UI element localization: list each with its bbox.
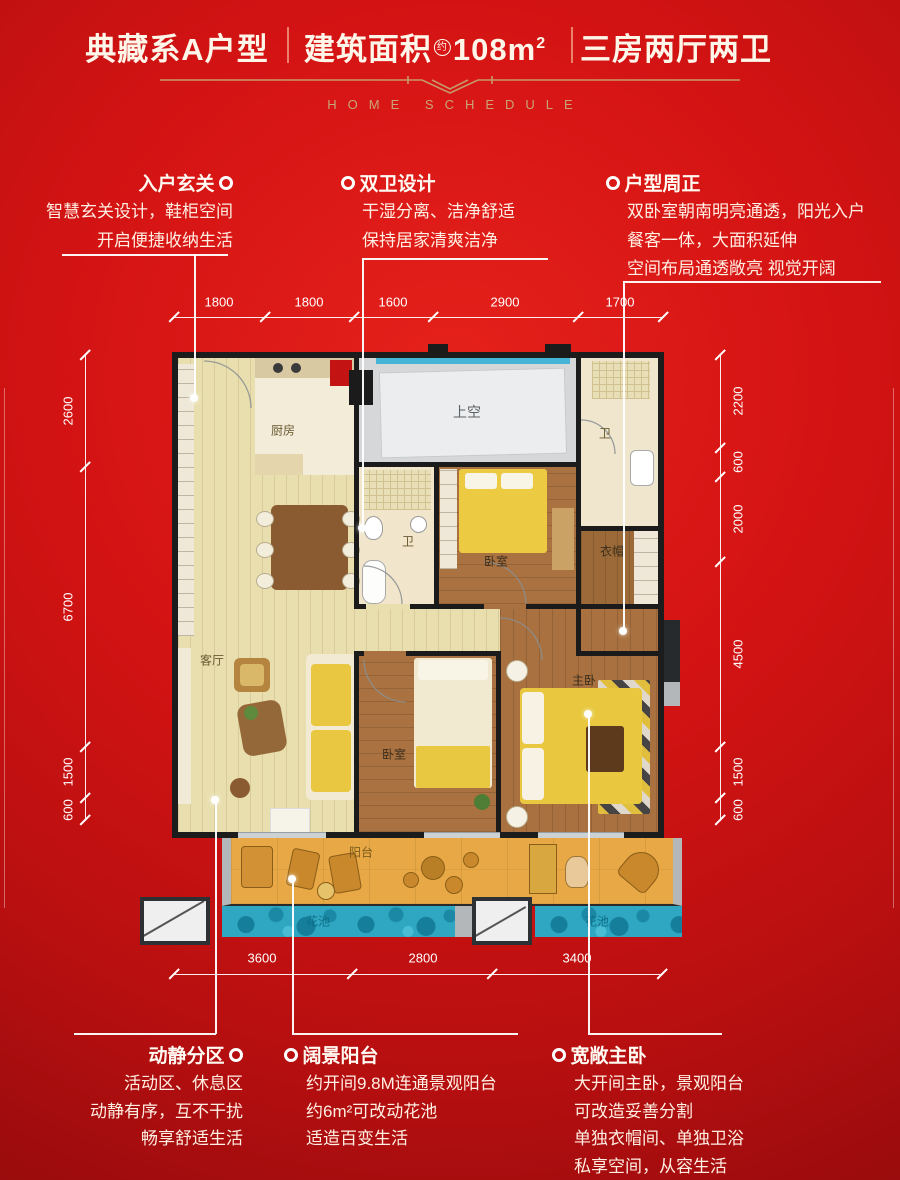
callout-title-row: 阔景阳台 — [284, 1044, 497, 1070]
balcony-seat — [241, 846, 273, 888]
callout-title: 阔景阳台 — [302, 1046, 378, 1067]
callout-bath: 双卫设计 干湿分离、洁净舒适 保持居家清爽洁净 — [341, 172, 515, 255]
room-label-bedroom-south: 卧室 — [382, 746, 406, 763]
callout-title-row: 户型周正 — [606, 172, 865, 198]
callout-line: 单独衣帽间、单独卫浴 — [574, 1125, 744, 1153]
callout-zoning: 动静分区 活动区、休息区 动静有序，互不干扰 畅享舒适生活 — [28, 1044, 243, 1153]
balcony-cart — [529, 844, 557, 894]
callout-ring-icon — [219, 176, 233, 190]
leader-dot — [288, 875, 296, 883]
area-prefix: 建筑面积 — [304, 32, 432, 67]
callout-title-row: 动静分区 — [28, 1044, 243, 1070]
dim-label: 1600 — [379, 295, 408, 310]
callout-title-row: 双卫设计 — [341, 172, 515, 198]
fan-chair — [616, 845, 667, 896]
dim-label: 1700 — [606, 295, 635, 310]
edge-line — [893, 388, 894, 908]
leader-dot — [619, 627, 627, 635]
wall-column — [664, 620, 680, 682]
patio-chair — [403, 872, 419, 888]
callout-title: 双卫设计 — [359, 174, 435, 195]
callout-title: 动静分区 — [149, 1046, 225, 1067]
callout-line: 餐客一体，大面积延伸 — [627, 227, 865, 256]
wall-segment — [455, 906, 472, 937]
callout-title: 入户玄关 — [139, 174, 215, 195]
callout-line: 适造百变生活 — [306, 1125, 497, 1153]
callout-line: 保持居家清爽洁净 — [362, 227, 515, 256]
dim-label: 2800 — [409, 951, 438, 966]
room-label-kitchen: 厨房 — [271, 422, 295, 439]
patio-chair — [445, 876, 463, 894]
lounge-chair — [285, 848, 320, 891]
subtitle: HOME SCHEDULE — [316, 97, 583, 112]
small-table — [317, 882, 335, 900]
leader-dot — [584, 710, 592, 718]
callout-ring-icon — [606, 176, 620, 190]
ac-unit — [472, 897, 532, 945]
leader-line — [623, 281, 625, 631]
room-label-void: 上空 — [453, 402, 481, 422]
room-label-cloakroom: 衣帽 — [600, 543, 624, 560]
callout-balcony: 阔景阳台 约开间9.8M连通景观阳台 约6m²可改动花池 适造百变生活 — [284, 1044, 497, 1153]
room-label-living: 客厅 — [200, 652, 224, 669]
edge-line — [4, 388, 5, 908]
dim-label: 600 — [731, 799, 746, 821]
leader-dot — [358, 524, 366, 532]
callout-line: 活动区、休息区 — [28, 1070, 243, 1098]
balcony: 阳台 — [222, 838, 682, 906]
wall-segment — [664, 682, 680, 706]
leader-line — [362, 258, 364, 528]
callout-line: 干湿分离、洁净舒适 — [362, 198, 515, 227]
dim-line-top — [174, 317, 664, 318]
leader-line — [74, 1033, 216, 1035]
patio-table — [421, 856, 445, 880]
callout-line: 智慧玄关设计，鞋柜空间 — [8, 198, 233, 227]
balcony-fixture — [565, 856, 589, 888]
approx-circle-icon: 约 — [434, 39, 451, 56]
callout-line: 畅享舒适生活 — [28, 1125, 243, 1153]
callout-line: 双卧室朝南明亮通透，阳光入户 — [627, 198, 865, 227]
callout-line: 可改造妥善分割 — [574, 1098, 744, 1126]
callout-ring-icon — [341, 176, 355, 190]
leader-line — [588, 714, 590, 1034]
area-title: 建筑面积约108m2 — [304, 24, 546, 69]
dim-label: 1800 — [205, 295, 234, 310]
ac-diagonal — [140, 900, 205, 939]
callout-line: 开启便捷收纳生活 — [8, 227, 233, 256]
leader-line — [292, 879, 294, 1034]
dim-label: 3600 — [248, 951, 277, 966]
callout-title-row: 入户玄关 — [8, 172, 233, 198]
flower-pool: 花池 — [535, 906, 682, 937]
callout-line: 约开间9.8M连通景观阳台 — [306, 1070, 497, 1098]
dim-label: 1500 — [731, 758, 746, 787]
callout-ring-icon — [552, 1048, 566, 1062]
dim-label: 2600 — [61, 397, 76, 426]
ac-diagonal — [472, 906, 527, 939]
ac-unit — [140, 897, 210, 945]
header-divider — [571, 27, 573, 63]
callout-squared-layout: 户型周正 双卧室朝南明亮通透，阳光入户 餐客一体，大面积延伸 空间布局通透敞亮 … — [606, 172, 865, 284]
leader-dot — [211, 796, 219, 804]
divider-ornament — [160, 72, 740, 98]
area-value: 108m — [453, 32, 536, 67]
callout-line: 动静有序，互不干扰 — [28, 1098, 243, 1126]
leader-line — [588, 1033, 722, 1035]
dim-line-right — [720, 355, 721, 821]
leader-dot — [190, 394, 198, 402]
room-label-master: 主卧 — [572, 672, 596, 689]
leader-line — [215, 800, 217, 1034]
dim-label: 2200 — [731, 387, 746, 416]
dim-label: 600 — [61, 799, 76, 821]
callout-master: 宽敞主卧 大开间主卧，景观阳台 可改造妥善分割 单独衣帽间、单独卫浴 私享空间，… — [552, 1044, 744, 1180]
layout-title: 三房两厅两卫 — [580, 24, 772, 69]
callout-title: 户型周正 — [624, 174, 700, 195]
callout-line: 空间布局通透敞亮 视觉开阔 — [627, 255, 865, 284]
callout-line: 约6m²可改动花池 — [306, 1098, 497, 1126]
dim-label: 6700 — [61, 593, 76, 622]
wall-column — [545, 344, 571, 356]
callout-title: 宽敞主卧 — [570, 1046, 646, 1067]
callout-ring-icon — [229, 1048, 243, 1062]
dim-line-left — [85, 355, 86, 821]
dim-label: 4500 — [731, 640, 746, 669]
room-label-bath-top: 卫 — [599, 425, 611, 442]
header-divider — [287, 27, 289, 63]
floor-plan: 厨房 上空 卫 卫 卧室 衣帽 客厅 卧室 主卧 — [172, 352, 664, 838]
flower-pool: 花池 — [222, 906, 455, 937]
door-arcs — [178, 358, 658, 832]
dim-label: 1800 — [295, 295, 324, 310]
room-label-balcony: 阳台 — [349, 844, 373, 861]
pool-label: 花池 — [306, 913, 330, 930]
room-label-bath-mid: 卫 — [402, 533, 414, 550]
wall-column — [428, 344, 448, 354]
dim-label: 2000 — [731, 505, 746, 534]
leader-line — [362, 258, 548, 260]
patio-chair — [463, 852, 479, 868]
poster-page: 典藏系A户型 建筑面积约108m2 三房两厅两卫 HOME SCHEDULE 入… — [0, 0, 900, 1180]
dim-label: 2900 — [491, 295, 520, 310]
leader-line — [194, 254, 196, 398]
room-label-bedroom-north: 卧室 — [484, 553, 508, 570]
callout-ring-icon — [284, 1048, 298, 1062]
callout-entry: 入户玄关 智慧玄关设计，鞋柜空间 开启便捷收纳生活 — [8, 172, 233, 255]
area-sup: 2 — [536, 35, 546, 52]
callout-line: 大开间主卧，景观阳台 — [574, 1070, 744, 1098]
leader-line — [292, 1033, 518, 1035]
dim-label: 1500 — [61, 758, 76, 787]
callout-title-row: 宽敞主卧 — [552, 1044, 744, 1070]
dim-line-bottom — [174, 974, 663, 975]
page-title: 典藏系A户型 — [85, 24, 268, 69]
dim-label: 600 — [731, 451, 746, 473]
callout-line: 私享空间，从容生活 — [574, 1153, 744, 1180]
